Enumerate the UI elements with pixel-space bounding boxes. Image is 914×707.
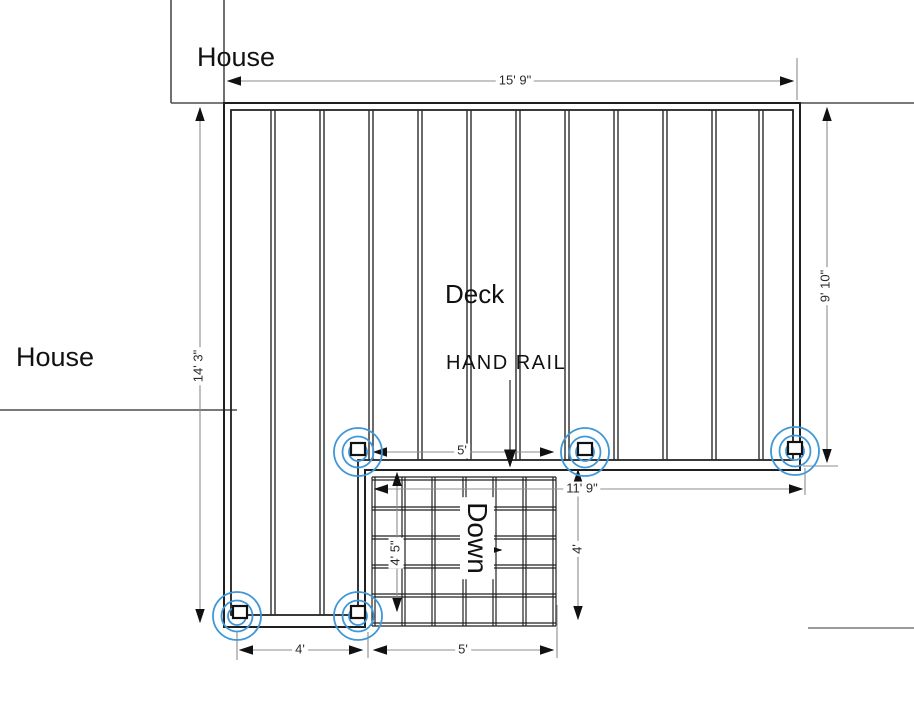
- dim-stair-right-height: 4': [571, 541, 586, 557]
- footing-symbol: [771, 427, 819, 475]
- dim-left-height: 14' 3": [192, 347, 207, 385]
- dim-stair-bottom-width: 5': [455, 643, 471, 658]
- handrail-label: HAND RAIL: [446, 352, 566, 375]
- house-walls: [0, 0, 914, 410]
- down-label: Down: [460, 497, 494, 579]
- dim-lower-width: 11' 9": [563, 482, 600, 497]
- house-label-left: House: [16, 342, 94, 373]
- house-label-top: House: [197, 42, 275, 73]
- deck-plan-canvas: House House Deck HAND RAIL Down 15' 9" 9…: [0, 0, 914, 707]
- dim-footing-spacing: 4': [292, 643, 308, 658]
- dim-stair-side-height: 4' 5": [389, 537, 404, 568]
- footing-symbol: [561, 428, 609, 476]
- dim-top-width: 15' 9": [496, 74, 534, 89]
- dim-right-height: 9' 10": [819, 267, 834, 305]
- dim-stair-top-width: 5': [454, 444, 470, 459]
- deck-label: Deck: [445, 279, 504, 310]
